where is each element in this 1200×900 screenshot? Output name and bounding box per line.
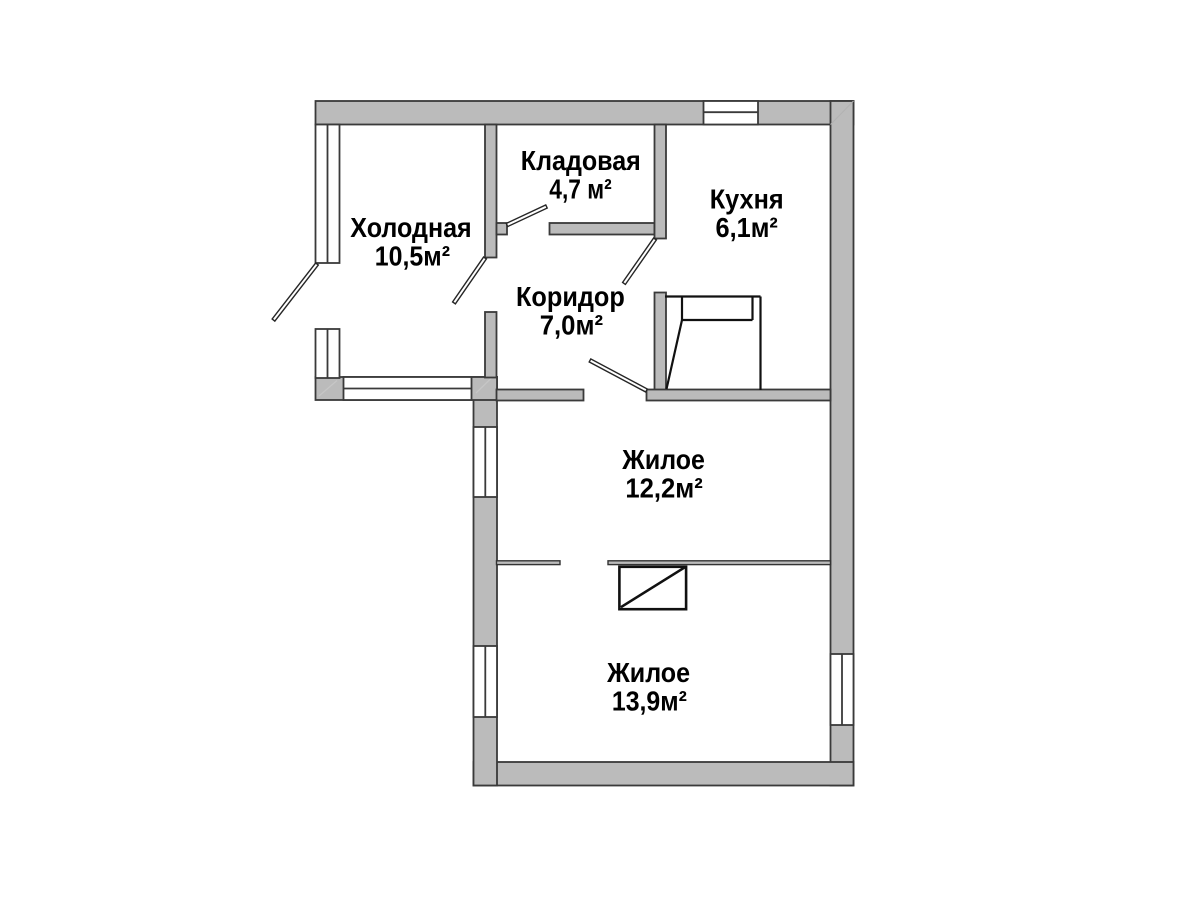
svg-text:Кладовая: Кладовая	[521, 145, 641, 176]
svg-text:Жилое: Жилое	[606, 657, 690, 688]
svg-text:Жилое: Жилое	[621, 444, 704, 475]
svg-text:4,7 м²: 4,7 м²	[549, 174, 611, 205]
svg-text:13,9м²: 13,9м²	[612, 686, 687, 717]
svg-text:7,0м²: 7,0м²	[540, 309, 603, 340]
svg-text:6,1м²: 6,1м²	[716, 212, 778, 243]
svg-text:Коридор: Коридор	[516, 281, 625, 312]
svg-text:12,2м²: 12,2м²	[625, 473, 702, 504]
svg-text:Холодная: Холодная	[350, 212, 471, 243]
svg-text:10,5м²: 10,5м²	[375, 241, 450, 272]
svg-text:Кухня: Кухня	[710, 184, 784, 215]
